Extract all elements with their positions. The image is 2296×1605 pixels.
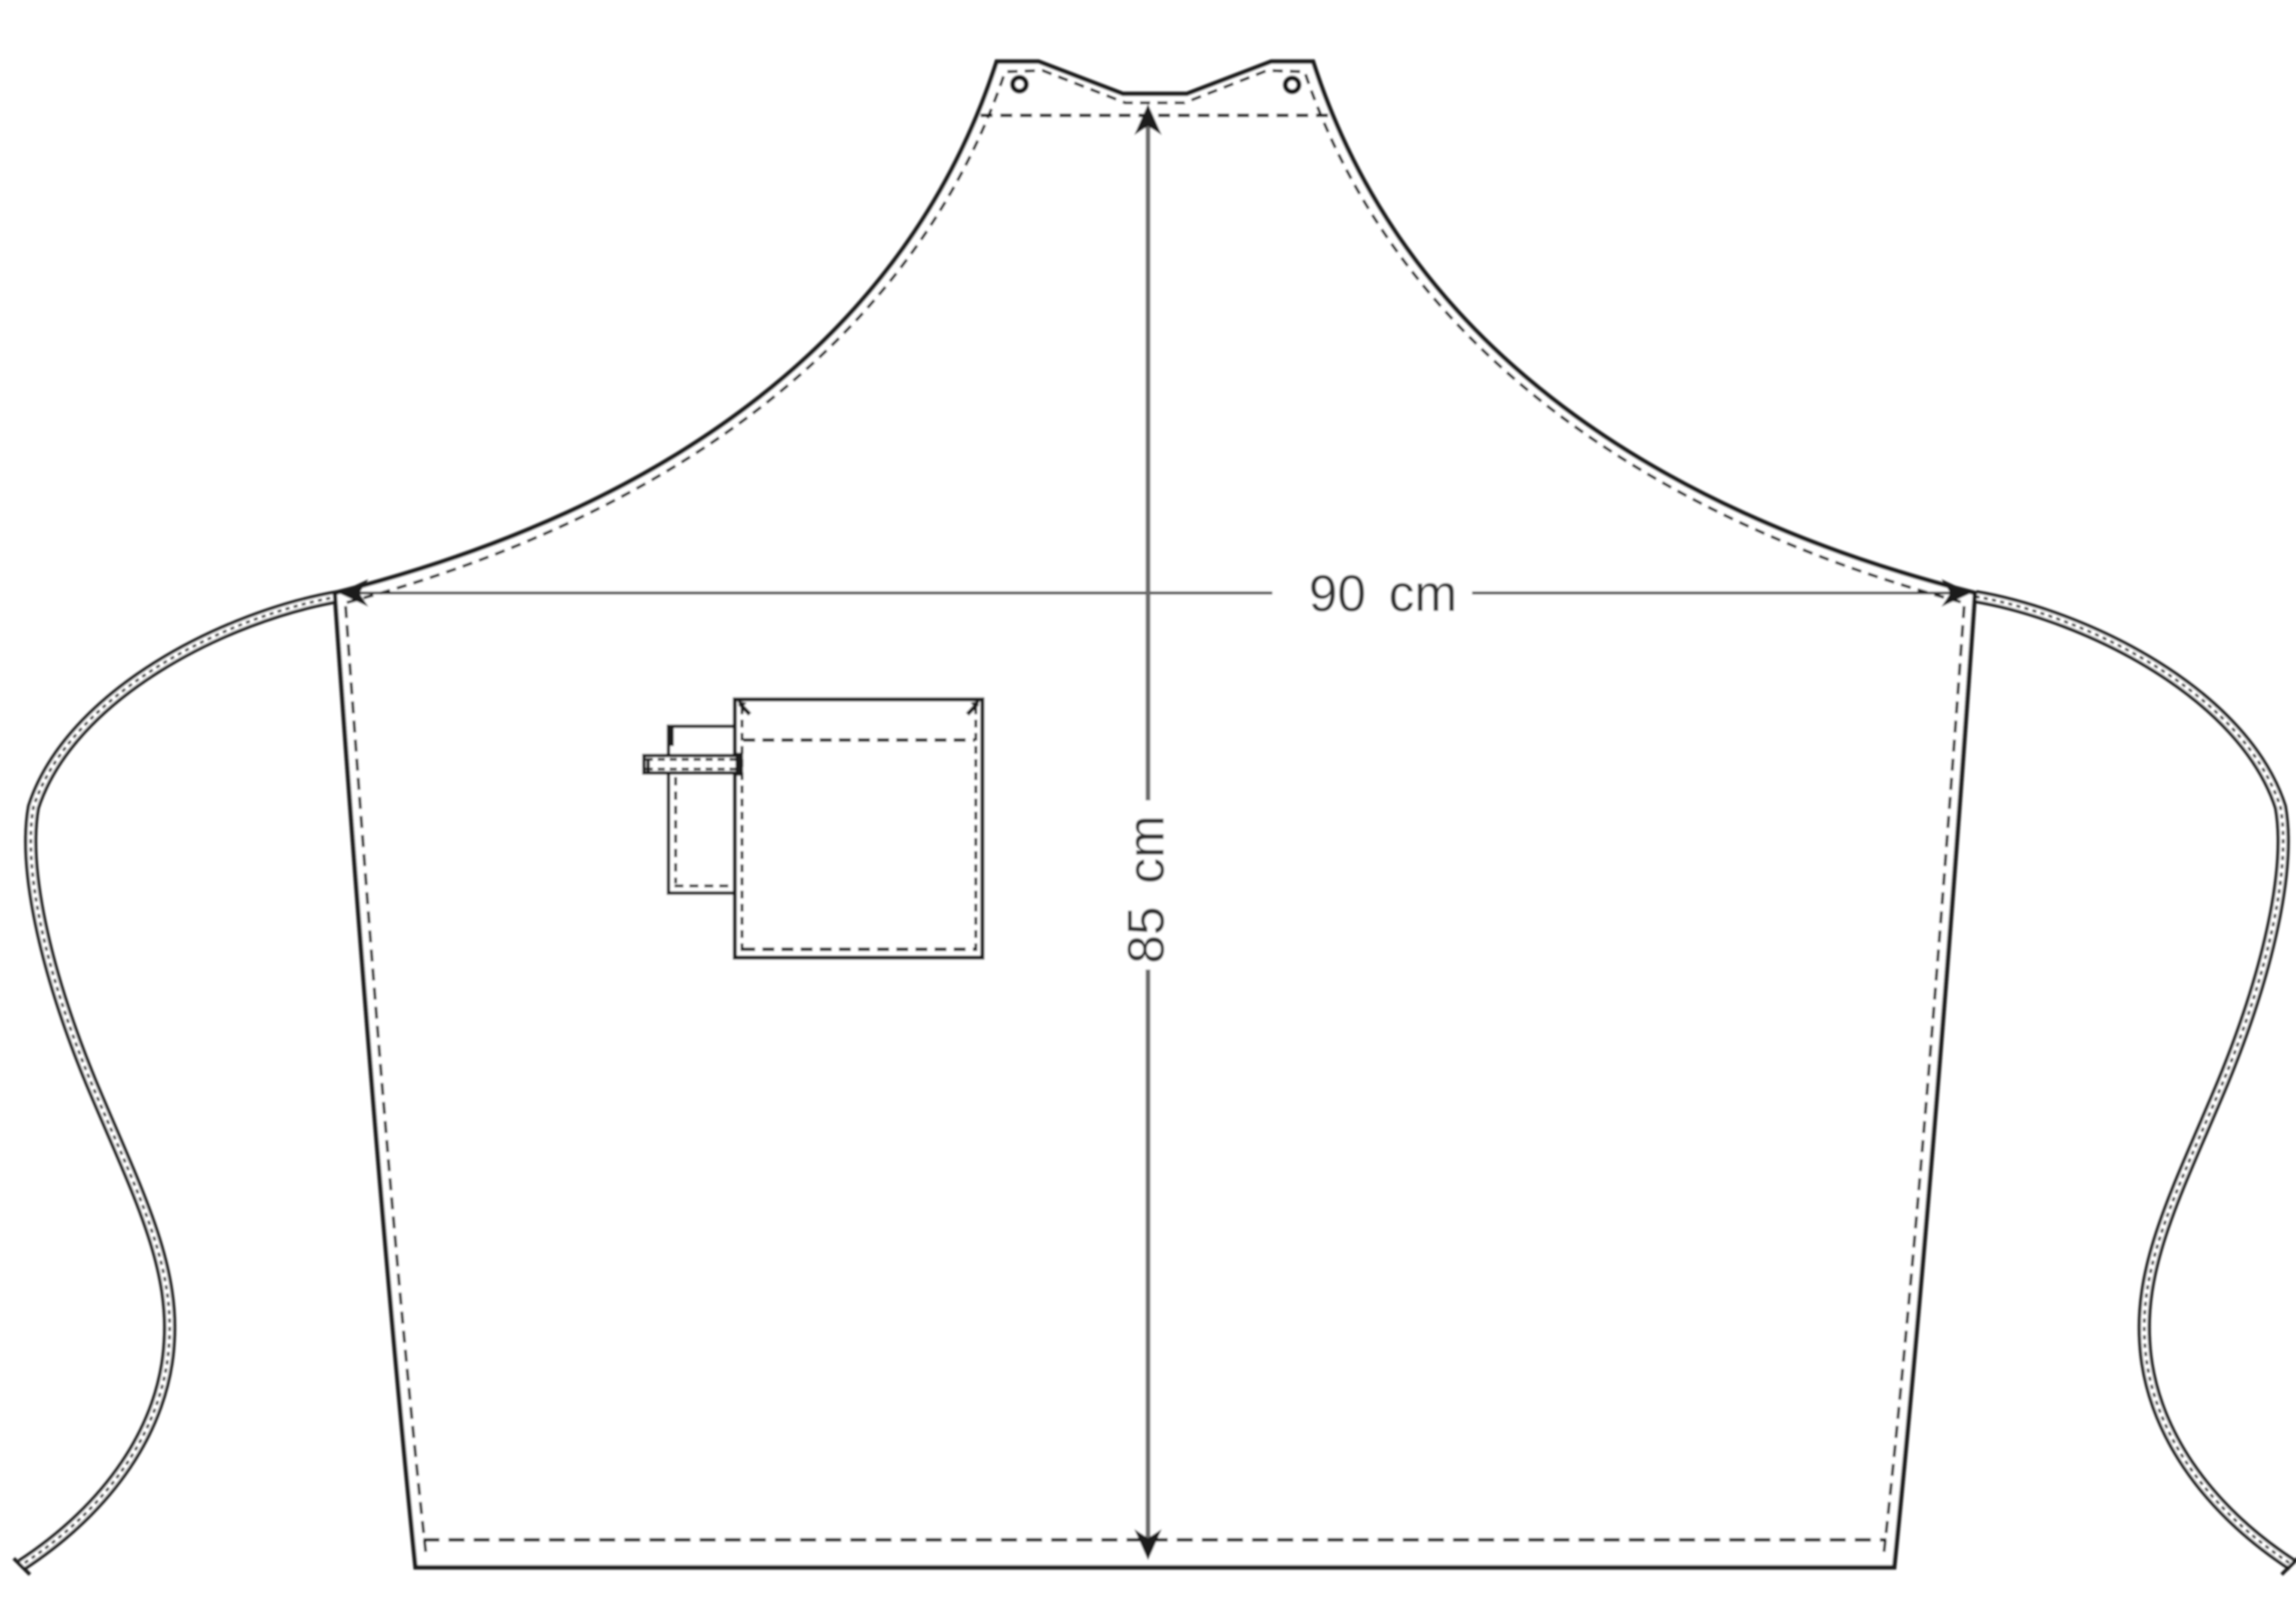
- svg-text:90 cm: 90 cm: [1309, 565, 1457, 622]
- svg-text:85 cm: 85 cm: [1118, 815, 1175, 964]
